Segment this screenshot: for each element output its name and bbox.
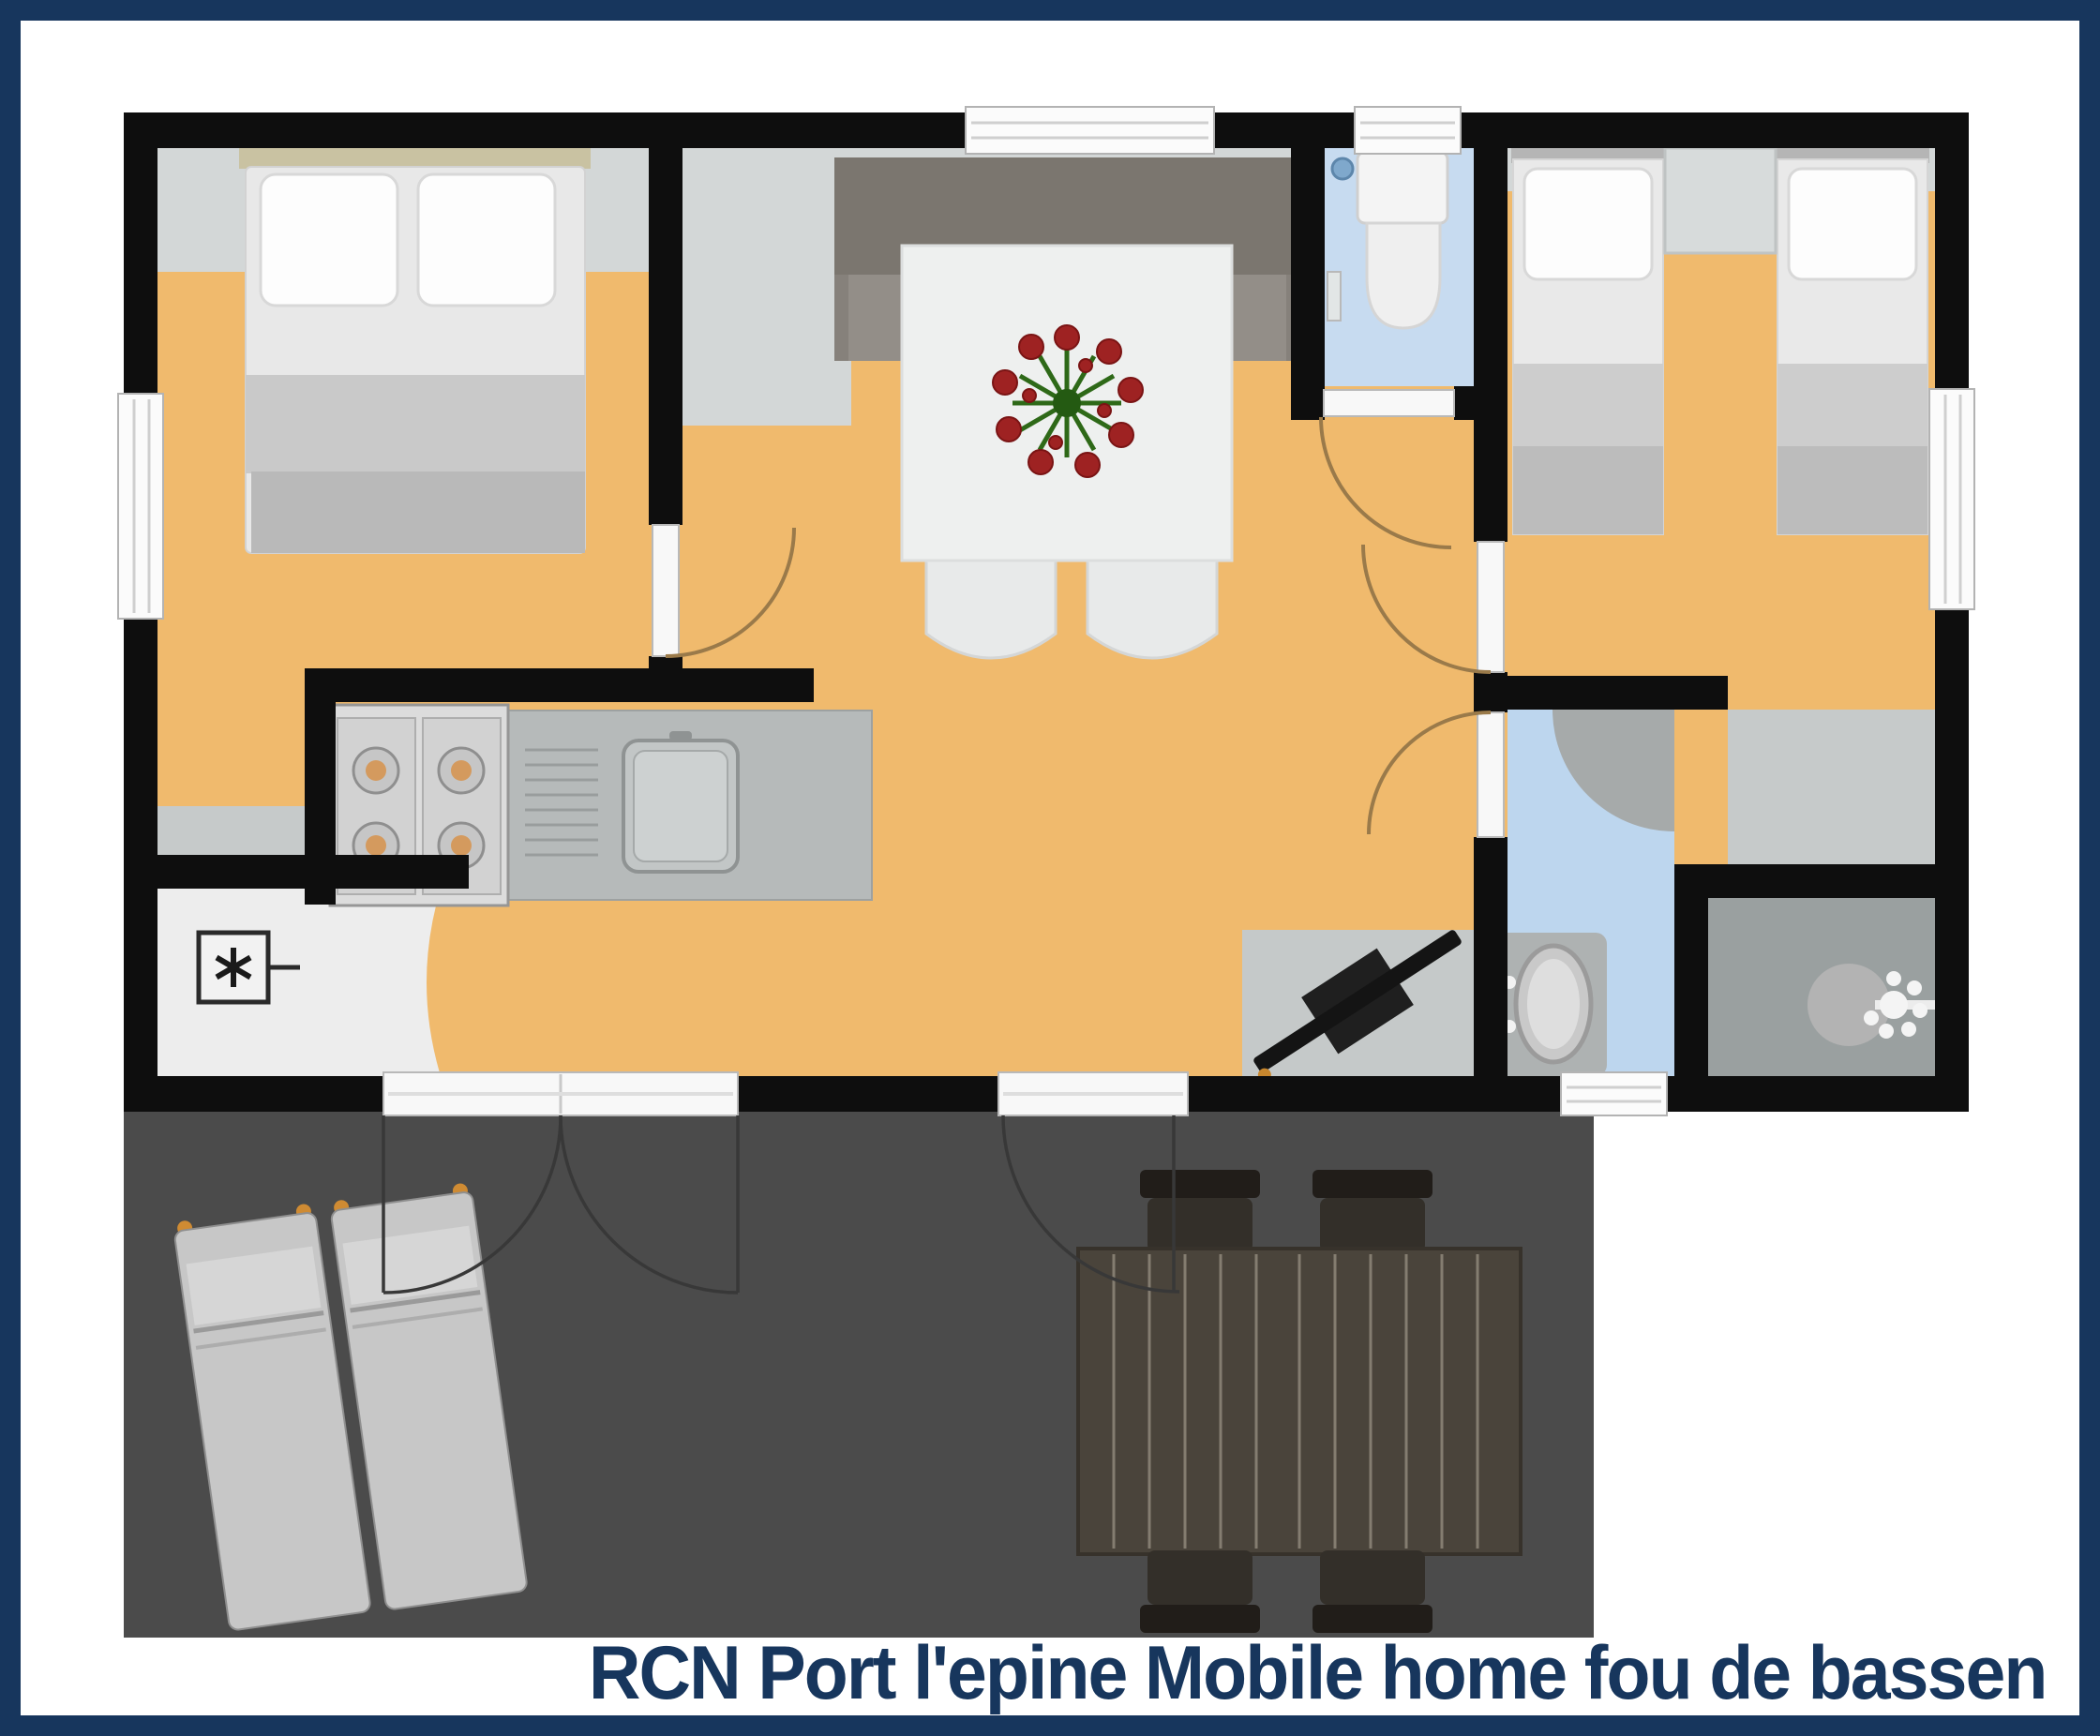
flatscreen-tv <box>1235 907 1477 1098</box>
left-window <box>118 394 163 619</box>
wall-bottom <box>1667 1076 1969 1112</box>
terrace-chair <box>1312 1550 1432 1633</box>
pillow-right <box>418 174 555 306</box>
faucet <box>669 731 692 741</box>
wash-basin <box>1496 933 1607 1076</box>
double-bed <box>239 148 591 553</box>
wall-bottom <box>738 1076 998 1112</box>
pillow <box>1524 169 1652 279</box>
terrace-chair <box>1140 1170 1260 1252</box>
wall-storage <box>124 855 469 889</box>
single-bed-right <box>1776 148 1929 534</box>
single-bed-left <box>1511 148 1665 534</box>
storage-floor-curve <box>427 889 478 1076</box>
chair <box>926 561 1056 658</box>
wall-wc-bottom <box>1291 386 1324 420</box>
wall-right <box>1935 148 1969 1112</box>
closet-nook-floor <box>1728 710 1935 864</box>
wall-bathroom-top <box>1507 676 1728 710</box>
top-living-window <box>966 107 1214 154</box>
nightstand <box>1665 148 1776 253</box>
terrace-chair <box>1312 1170 1432 1252</box>
flush-button <box>1332 158 1353 179</box>
pillow <box>1789 169 1916 279</box>
living-floor-patch <box>682 148 851 426</box>
wall-shower <box>1674 864 1708 1076</box>
wall-hall <box>1474 837 1507 1112</box>
right-bedroom-window <box>1929 389 1974 609</box>
wall-bedroom1 <box>649 148 682 525</box>
floorplan-svg <box>21 21 2079 1715</box>
wall-nook-bottom <box>1674 864 1935 898</box>
wall-left <box>124 148 157 1112</box>
pillow-left <box>261 174 397 306</box>
picnic-table <box>1078 1249 1521 1554</box>
wall-hall <box>1474 672 1507 712</box>
terrace-chair <box>1140 1550 1260 1633</box>
toilet-roll-holder <box>1327 272 1341 321</box>
wall-kitchen <box>319 668 814 702</box>
plan-background <box>21 21 2079 1715</box>
kitchen-sink <box>623 731 738 872</box>
wall-wc-left <box>1291 148 1325 420</box>
plan-caption: RCN Port l'epine Mobile home fou de bass… <box>588 1630 2046 1717</box>
chair <box>1087 561 1217 658</box>
kitchen-floor-strip <box>157 806 323 855</box>
bathroom-window <box>1561 1072 1667 1115</box>
wall-bottom <box>124 1076 383 1112</box>
wall-hall <box>1474 148 1507 542</box>
screenshot-root: RCN Port l'epine Mobile home fou de bass… <box>0 0 2100 1736</box>
top-wc-window <box>1355 107 1461 154</box>
